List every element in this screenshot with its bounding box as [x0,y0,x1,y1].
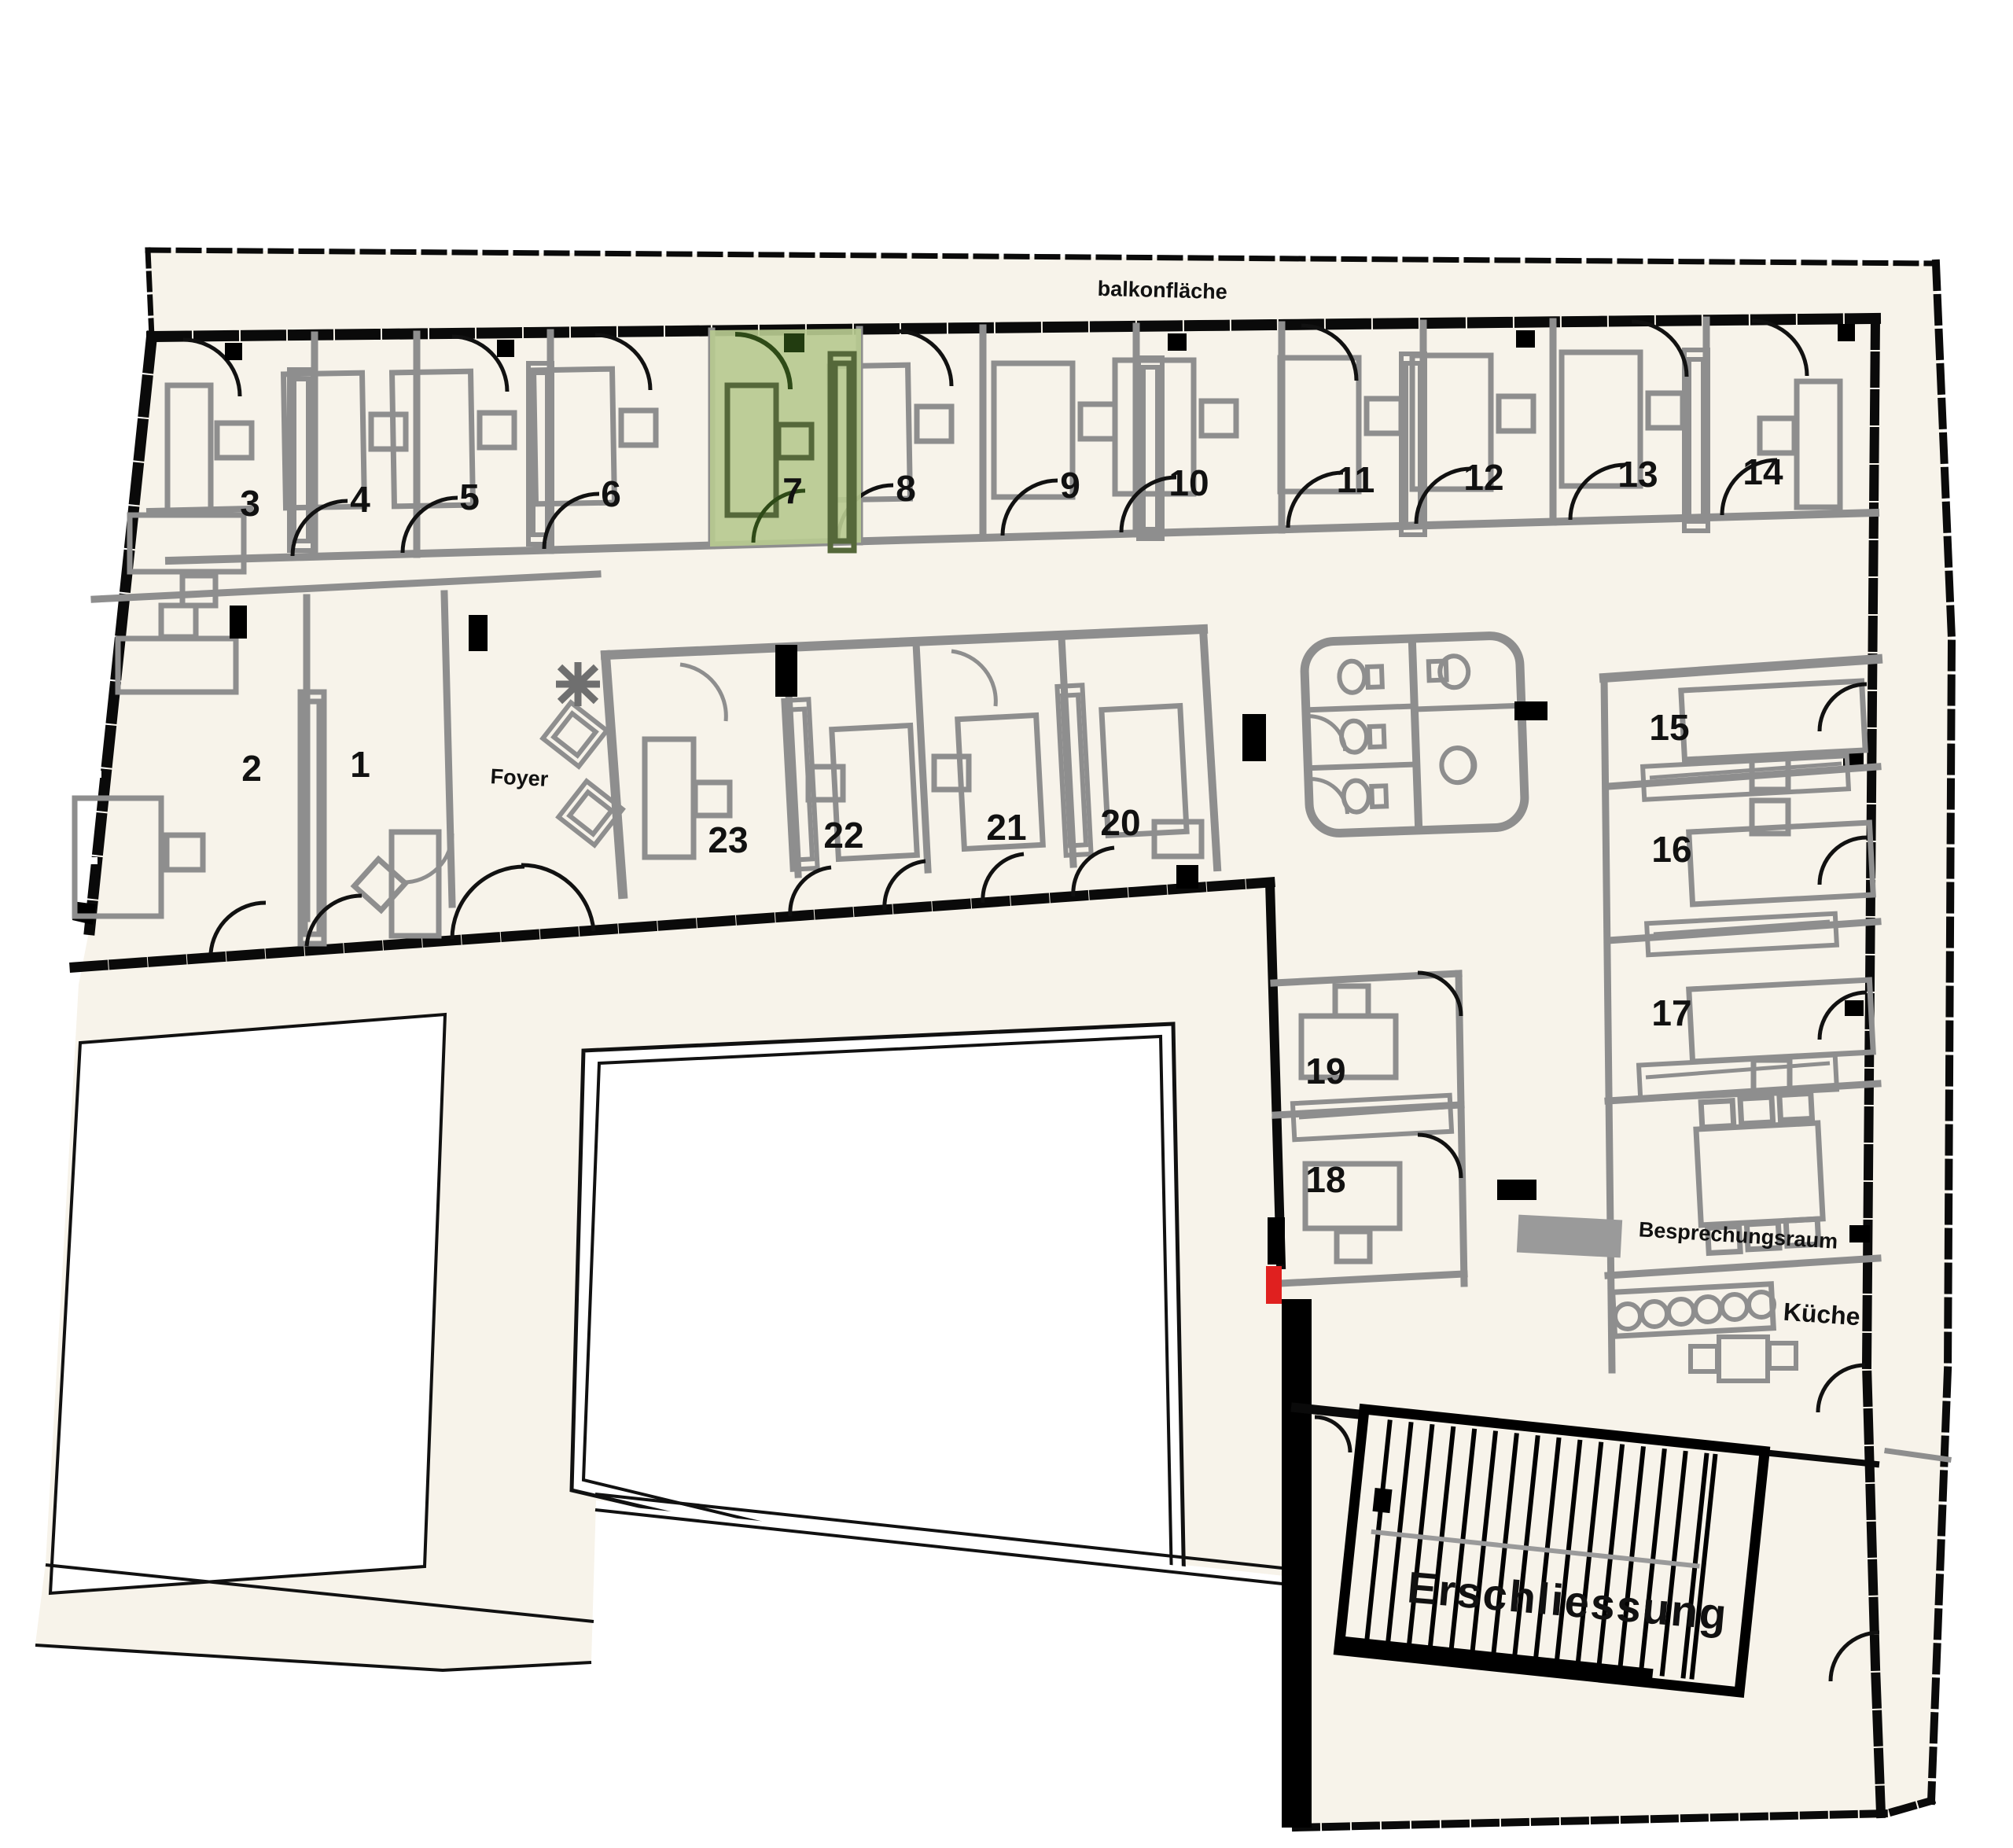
floorplan-canvas: balkonfläche Foyer Besprechungsraum Küch… [0,0,2013,1848]
exit-door-marker [1266,1266,1282,1304]
corridor-wall-block [1517,1215,1622,1258]
room-label-13: 13 [1617,454,1658,495]
room-label-17: 17 [1651,992,1691,1033]
room-label-2: 2 [241,748,262,789]
kitchen-label: Küche [1783,1298,1861,1331]
meeting-room-column [1849,1225,1870,1242]
room-label-11: 11 [1337,459,1375,500]
room-label-22: 22 [823,815,863,856]
room-label-9: 9 [1060,465,1080,506]
corridor-column-18 [1497,1180,1536,1200]
room-label-15: 15 [1649,707,1689,748]
room-label-6: 6 [601,473,621,514]
room-label-10: 10 [1168,462,1209,503]
room-label-1: 1 [350,744,370,785]
room-label-4: 4 [350,479,370,520]
room-label-14: 14 [1743,451,1783,492]
room-label-5: 5 [459,477,480,517]
room-label-20: 20 [1100,802,1140,843]
wall-above-exit [1268,1217,1285,1265]
room-7-highlight-group [710,329,861,550]
room-label-8: 8 [896,468,916,509]
room-label-19: 19 [1305,1051,1345,1091]
room-label-12: 12 [1463,457,1503,498]
stair-core-wall [1282,1299,1312,1828]
room-label-21: 21 [986,807,1026,848]
foyer-label: Foyer [490,764,549,791]
room-label-23: 23 [708,819,748,860]
room-label-7: 7 [782,470,803,511]
balcony-label: balkonfläche [1097,277,1227,304]
outside-cutout-west [50,1014,445,1593]
staircase [1339,1409,1765,1694]
room-label-16: 16 [1651,829,1691,870]
room-label-18: 18 [1305,1159,1345,1200]
room-label-3: 3 [240,483,260,524]
room-7-column [784,333,804,352]
